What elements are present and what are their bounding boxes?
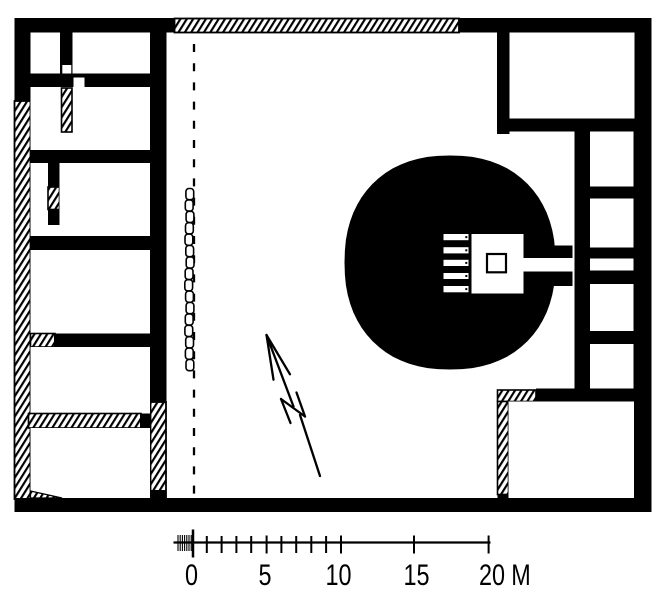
svg-text:15: 15	[403, 558, 429, 591]
svg-text:10: 10	[325, 558, 351, 591]
svg-text:0: 0	[185, 558, 198, 591]
svg-text:20: 20	[479, 558, 505, 591]
svg-text:M: M	[511, 558, 530, 591]
svg-text:5: 5	[258, 558, 271, 591]
